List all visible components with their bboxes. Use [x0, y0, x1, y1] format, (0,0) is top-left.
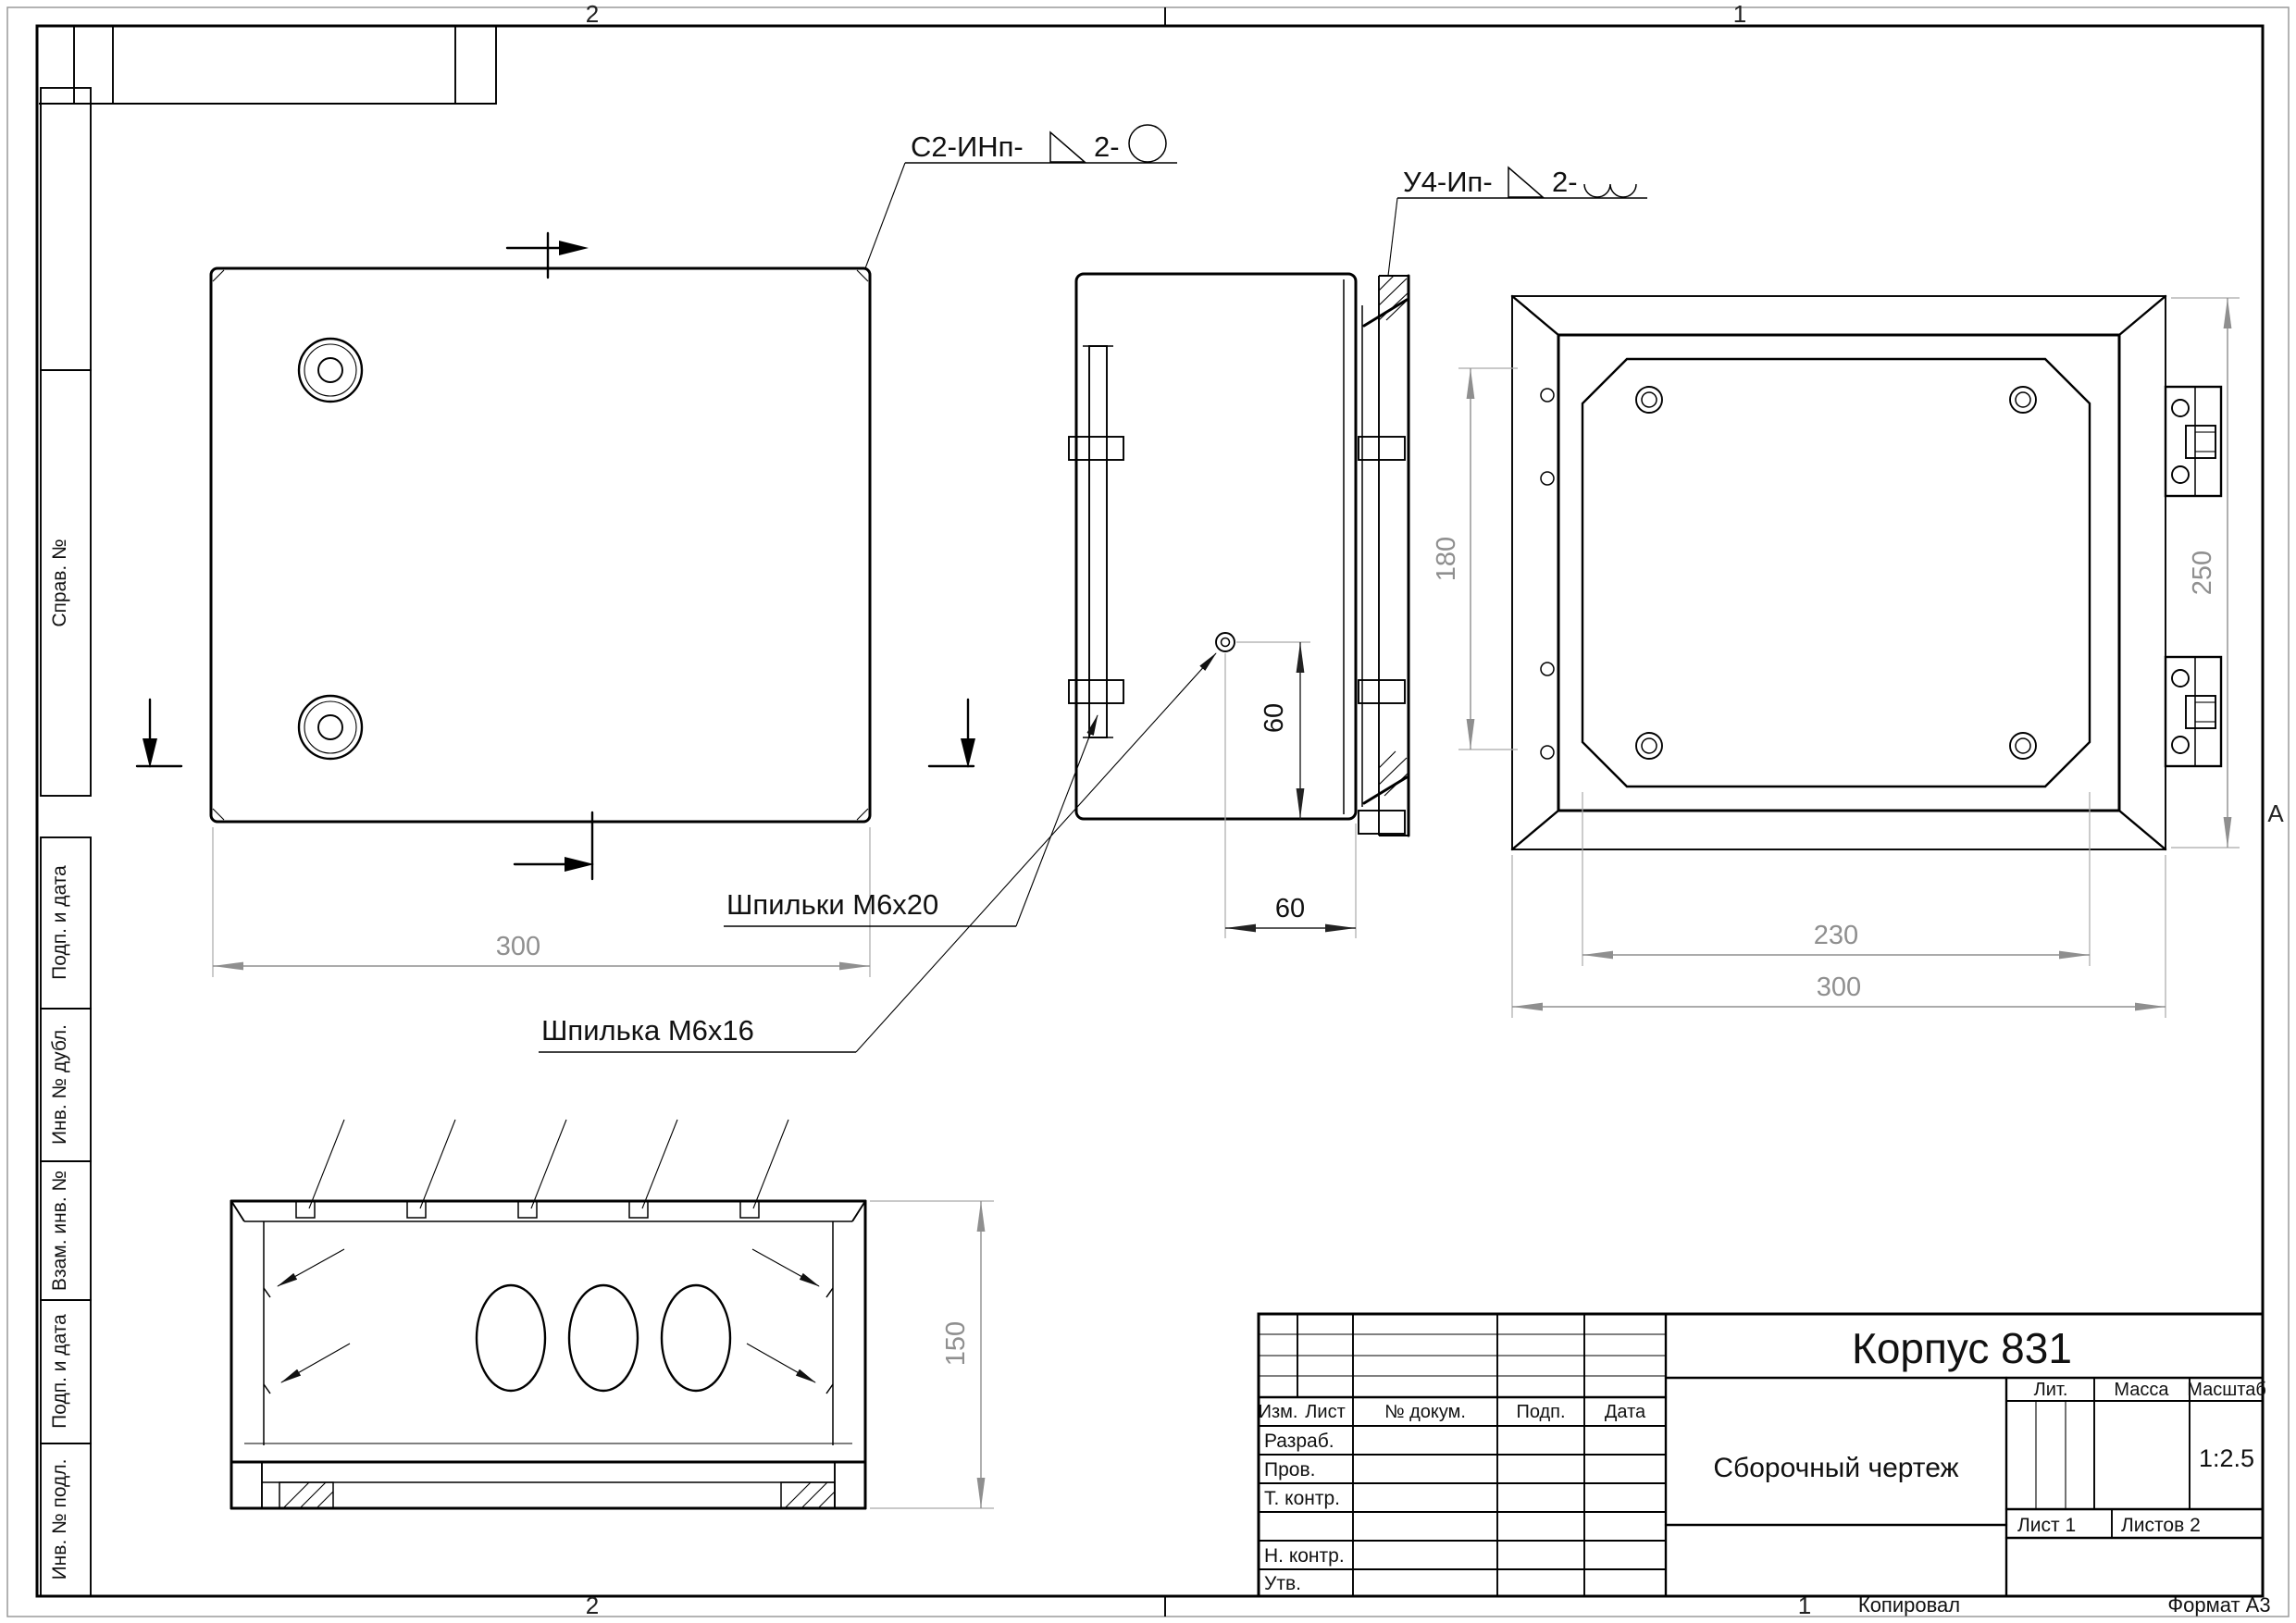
margin-label: Инв. № дубл.	[49, 1024, 70, 1145]
bushing-top	[299, 339, 362, 402]
weld-hatch-bottom	[1379, 751, 1409, 796]
left-margin-stamps: Справ. № Подп. и дата Инв. № дубл. Взам.…	[41, 88, 91, 1596]
body-edge-profile	[1359, 276, 1409, 836]
tb-sheet-info: Лист 1	[2017, 1515, 2076, 1536]
bushing-bottom	[299, 696, 362, 759]
dim-front-inner-height: 180	[1432, 368, 1518, 750]
tb-label-izm: Изм.	[1259, 1402, 1298, 1422]
dim-text: 60	[1260, 703, 1289, 733]
zone-label-right-a: А	[2267, 799, 2284, 827]
leader-label: Шпилька М6х16	[541, 1014, 754, 1047]
gland-holes	[477, 1285, 730, 1391]
corner-wall-diagonals	[1512, 296, 2166, 849]
tb-label-docnum: № докум.	[1384, 1402, 1466, 1422]
hinge-top	[2166, 387, 2221, 496]
body-tab-mid	[1359, 680, 1405, 703]
hinge-bottom	[2166, 657, 2221, 766]
zone-label-bottom-2: 2	[586, 1592, 599, 1619]
tb-label-tkontr: Т. контр.	[1264, 1488, 1340, 1509]
weld-callout-c2: С2-ИНп- 2-	[865, 125, 1177, 268]
tb-doc-type: Сборочный чертеж	[1713, 1453, 1958, 1483]
weld-all-around-icon	[1129, 125, 1166, 162]
top-edge-weld-notches	[296, 1120, 788, 1218]
dim-stud-vertical: 60	[1236, 642, 1310, 819]
leader-label: Шпильки М6х20	[726, 888, 938, 921]
tb-label-masshtab: Масштаб	[2187, 1380, 2266, 1400]
weld-bevel-bottom	[1364, 777, 1407, 803]
weld-callout-text: С2-ИНп-	[911, 130, 1024, 163]
margin-label: Справ. №	[49, 539, 70, 626]
hatch-right	[785, 1482, 835, 1508]
weld-qty-text: 2-	[1552, 166, 1578, 198]
tb-label-lit: Лит.	[2034, 1380, 2068, 1400]
dim-text: 180	[1432, 537, 1461, 581]
cover-outline	[211, 268, 870, 822]
tb-label-nkontr: Н. контр.	[1264, 1545, 1345, 1567]
zone-label-top-2: 2	[586, 0, 599, 28]
section-arrow-right-icon	[565, 857, 594, 872]
tb-label-list: Лист	[1305, 1402, 1345, 1422]
intermittent-weld-icon	[1584, 184, 1636, 197]
tb-label-prov: Пров.	[1264, 1459, 1315, 1481]
view-side-door: У4-Ип- 2- 60 60 Шпильки М6х20 Шпилька М6…	[539, 166, 1647, 1052]
cad-drawing-sheet: 2 1 2 1 А Копировал Формат А3 Справ. № П…	[0, 0, 2296, 1623]
weld-qty-text: 2-	[1094, 130, 1120, 163]
view-bottom-body: 150	[231, 1120, 994, 1508]
door-stud	[1216, 633, 1235, 651]
title-block: Изм. Лист № докум. Подп. Дата Разраб. Пр…	[1259, 1314, 2266, 1596]
tb-label-utv: Утв.	[1264, 1573, 1301, 1594]
section-arrow-right-icon	[559, 241, 589, 255]
plinth	[231, 1462, 865, 1508]
margin-box-blank	[41, 88, 91, 370]
mounting-panel	[1582, 359, 2090, 787]
corner-weld-arrows	[264, 1249, 833, 1394]
view-top-cover: 300 С2-ИНп- 2-	[137, 125, 1177, 977]
section-arrow-down-icon	[143, 738, 157, 768]
fillet-weld-icon	[1508, 167, 1543, 197]
weld-callout-u4: У4-Ип- 2-	[1388, 166, 1647, 276]
weld-callout-text: У4-Ип-	[1403, 166, 1493, 198]
dim-text: 230	[1814, 921, 1858, 950]
dim-text: 250	[2188, 551, 2217, 595]
margin-label: Подп. и дата	[49, 1314, 70, 1429]
tb-label-massa: Масса	[2114, 1380, 2169, 1400]
flange-holes	[1541, 389, 1554, 759]
margin-label: Подп. и дата	[49, 865, 70, 980]
dim-text: 300	[1817, 973, 1861, 1002]
view-front-body: 180 250 230 300	[1432, 296, 2240, 1018]
section-cut-marks	[137, 233, 975, 879]
dim-depth: 150	[870, 1201, 994, 1508]
dim-text: 150	[941, 1321, 971, 1366]
dim-front-inner-width: 230	[1582, 792, 2090, 966]
tb-label-data: Дата	[1605, 1402, 1646, 1422]
tb-drawing-title: Корпус 831	[1852, 1324, 2072, 1372]
dim-stud-horizontal: 60	[1225, 653, 1356, 938]
dim-text: 60	[1275, 894, 1305, 923]
body-outer-rect	[1512, 296, 2166, 849]
tb-sheets-info: Листов 2	[2121, 1515, 2201, 1536]
section-arrow-down-icon	[961, 738, 975, 768]
weld-bevel-top	[1364, 300, 1407, 326]
drawing-canvas: 2 1 2 1 А Копировал Формат А3 Справ. № П…	[0, 0, 2296, 1623]
dim-text: 300	[496, 932, 540, 961]
tb-label-razrab: Разраб.	[1264, 1431, 1334, 1452]
weld-leader-lines	[309, 1120, 788, 1208]
body-tab-top	[1359, 437, 1405, 460]
stud-m6x16-label: Шпилька М6х16	[539, 653, 1216, 1052]
margin-label: Инв. № подл.	[49, 1459, 70, 1580]
body-tab-bottom	[1359, 811, 1405, 834]
tb-label-podp: Подп.	[1516, 1402, 1565, 1422]
zone-label-top-1: 1	[1733, 0, 1746, 28]
margin-label: Взам. инв. №	[49, 1171, 70, 1291]
top-left-corner-stamp	[39, 26, 496, 104]
tb-scale-value: 1:2.5	[2199, 1444, 2254, 1472]
door-outline	[1076, 274, 1356, 819]
fillet-weld-icon	[1050, 132, 1085, 162]
hatch-left	[283, 1482, 333, 1508]
panel-corner-bolts	[1636, 387, 2036, 759]
